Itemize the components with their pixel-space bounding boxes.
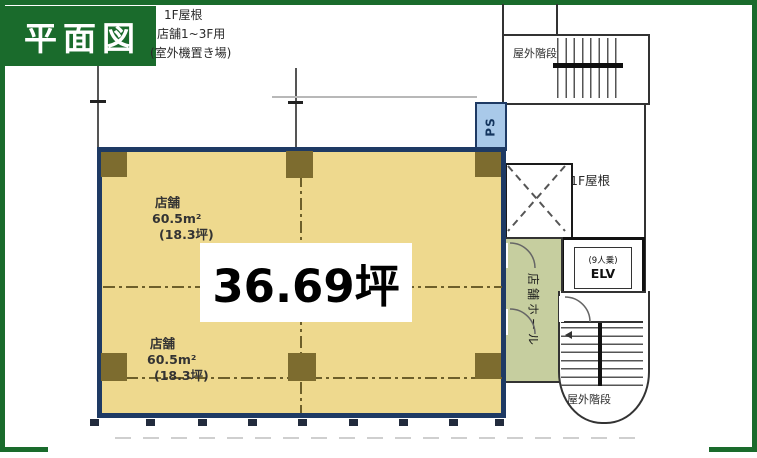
- door-arc-icon-2: [509, 308, 536, 335]
- wall-stair-stub: [556, 4, 558, 35]
- stair-treads-icon: [557, 38, 621, 98]
- scan-artifact-line: [115, 437, 640, 439]
- stair-landing-bar: [553, 63, 623, 68]
- dim-tick: [198, 419, 207, 426]
- roof-note: 1F屋根 店舗1~3F用 (室外機置き場): [150, 6, 231, 63]
- roof-note-line3: (室外機置き場): [150, 44, 231, 63]
- wall-center-stub: [295, 68, 297, 147]
- column-top-right: [475, 152, 501, 177]
- roof-note-line1: 1F屋根: [150, 6, 231, 25]
- wall-center-tick: [288, 101, 303, 104]
- shop-area-tsubo: (18.3坪): [147, 368, 209, 384]
- column-mid-center: [288, 353, 316, 381]
- stair-divider: [598, 323, 602, 386]
- column-top-center: [286, 151, 313, 178]
- outdoor-stairs-bottom-label: 屋外階段: [567, 391, 611, 407]
- frame-right: [752, 0, 757, 452]
- dim-tick: [90, 419, 99, 426]
- dim-tick: [399, 419, 408, 426]
- plan-title-badge: 平面図: [3, 6, 156, 66]
- shop-area-tsubo: (18.3坪): [152, 227, 214, 243]
- roof-note-line2: 店舗1~3F用: [150, 25, 231, 44]
- pipe-shaft-label: PS: [484, 117, 498, 136]
- outdoor-stairs-top-label: 屋外階段: [513, 45, 557, 61]
- shop-label-upper: 店舗 60.5m² (18.3坪): [152, 195, 214, 243]
- dim-tick: [495, 419, 504, 426]
- landing-line: [561, 291, 646, 293]
- frame-bottom-left: [0, 447, 48, 452]
- total-area-callout: 36.69坪: [200, 243, 412, 322]
- shop-name: 店舗: [152, 195, 214, 211]
- door-arc-icon-3: [564, 296, 591, 323]
- frame-bottom-right: [709, 447, 757, 452]
- dim-tick: [298, 419, 307, 426]
- shop-label-lower: 店舗 60.5m² (18.3坪): [147, 336, 209, 384]
- elevator-car: (9人乗) ELV: [574, 247, 632, 289]
- pipe-shaft: PS: [475, 102, 507, 151]
- column-top-left: [101, 152, 127, 177]
- dim-tick: [146, 419, 155, 426]
- column-mid-left: [101, 353, 127, 381]
- roof-boundary-line: [272, 96, 477, 98]
- shop-area-m2: 60.5m²: [147, 352, 209, 368]
- plan-title: 平面図: [18, 12, 141, 60]
- stair-treads-icon-bottom: [561, 323, 643, 386]
- elevator: (9人乗) ELV: [561, 237, 645, 299]
- door-arc-icon-1: [509, 242, 536, 269]
- shop-name: 店舗: [147, 336, 209, 352]
- frame-left: [0, 0, 5, 452]
- wall-left-tick: [90, 100, 106, 103]
- x-cross-icon: [507, 165, 566, 232]
- stair-direction-arrow: [565, 331, 572, 339]
- shop-area-m2: 60.5m²: [152, 211, 214, 227]
- roof-1f-label: 1F屋根: [570, 170, 610, 189]
- dim-tick: [449, 419, 458, 426]
- dim-tick: [248, 419, 257, 426]
- column-mid-right: [475, 353, 501, 379]
- elevator-label: ELV: [591, 267, 615, 280]
- wall-left-stub: [97, 66, 99, 147]
- dim-tick: [349, 419, 358, 426]
- frame-top: [0, 0, 757, 5]
- floor-plan-page: 平面図 1F屋根 店舗1~3F用 (室外機置き場) 屋外階段 1F屋根 (9人乗…: [0, 0, 757, 458]
- shaft-x-box: [505, 163, 573, 239]
- total-area-value: 36.69坪: [212, 250, 399, 315]
- outdoor-stairs-top: 屋外階段: [502, 34, 650, 105]
